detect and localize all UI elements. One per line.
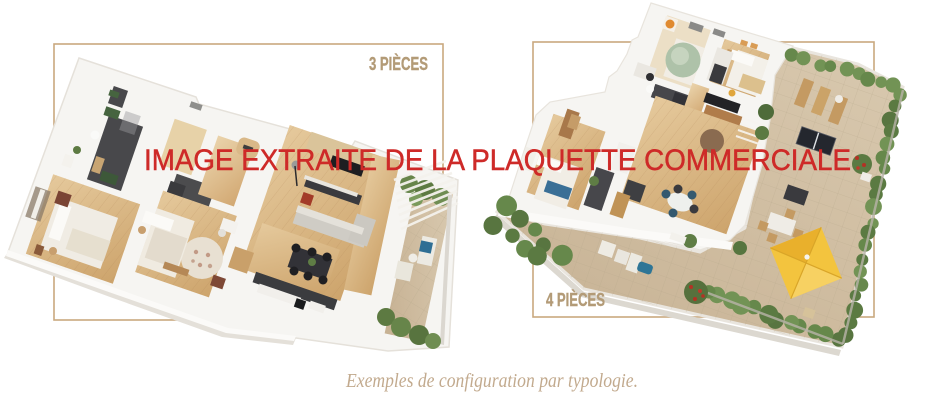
svg-text:3 PIÈCES: 3 PIÈCES <box>369 53 428 74</box>
svg-text:Exemples de configuration par: Exemples de configuration par typologie. <box>345 370 638 392</box>
svg-text:IMAGE EXTRAITE DE LA PLAQUETTE: IMAGE EXTRAITE DE LA PLAQUETTE COMMERCIA… <box>144 144 851 177</box>
svg-text:4 PIÈCES: 4 PIÈCES <box>546 289 605 310</box>
